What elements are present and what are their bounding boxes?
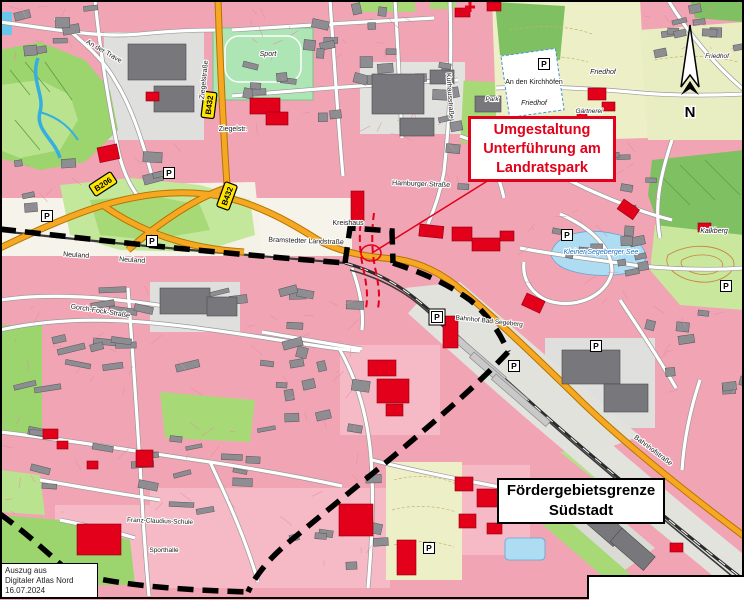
building — [53, 38, 67, 43]
public-building — [487, 523, 502, 534]
building — [329, 110, 341, 119]
building — [377, 63, 393, 73]
public-building — [339, 504, 373, 536]
building — [276, 382, 287, 388]
place-label: Sporthalle — [149, 547, 179, 554]
parking-label: P — [593, 341, 599, 351]
parking-icon: P — [509, 361, 520, 372]
building — [316, 48, 324, 58]
public-building — [588, 88, 606, 100]
parking-label: P — [564, 230, 570, 240]
large-building — [207, 297, 237, 316]
building — [386, 49, 396, 55]
callout-line: Südstadt — [499, 501, 663, 521]
large-building — [400, 118, 434, 136]
place-label: Kleiner Segeberger See — [564, 249, 639, 256]
building — [285, 413, 299, 422]
building — [24, 202, 37, 212]
public-building — [419, 224, 444, 238]
callout-line: Umgestaltung — [471, 121, 613, 140]
place-label: Kreishaus — [332, 220, 364, 227]
street-label: Ziegelstr. — [219, 126, 247, 133]
parking-label: P — [511, 361, 517, 371]
callout-foerdergebietsgrenze: Fördergebietsgrenze Südstadt — [497, 478, 665, 524]
building — [698, 310, 709, 317]
building — [55, 17, 69, 28]
building — [450, 121, 463, 132]
building — [315, 533, 327, 540]
public-building — [455, 477, 473, 491]
public-building — [386, 404, 403, 416]
building — [702, 29, 717, 37]
public-building — [397, 540, 416, 575]
parking-label: P — [541, 59, 547, 69]
public-building — [487, 2, 501, 11]
building — [42, 483, 57, 489]
building — [61, 159, 76, 169]
parking-icon: P — [429, 309, 445, 325]
callout-line: Unterführung am — [471, 140, 613, 159]
building — [351, 379, 370, 392]
building — [99, 287, 126, 293]
building — [617, 259, 626, 266]
public-building — [368, 360, 396, 376]
parking-icon: P — [591, 341, 602, 352]
map-attribution: Auszug aus Digitaler Atlas Nord 16.07.20… — [1, 563, 98, 598]
public-building — [250, 98, 280, 114]
parking-label: P — [434, 312, 440, 322]
building — [170, 435, 183, 442]
building — [346, 562, 357, 570]
building — [143, 152, 163, 163]
building — [169, 502, 194, 508]
building — [284, 389, 294, 401]
parking-icon: P — [42, 211, 53, 222]
parking-label: P — [149, 236, 155, 246]
callout-line: Fördergebietsgrenze — [499, 481, 663, 501]
north-label: N — [685, 104, 696, 121]
large-building — [160, 288, 210, 314]
public-building — [43, 429, 58, 439]
building — [221, 454, 242, 461]
building — [24, 45, 38, 56]
large-building — [372, 74, 424, 114]
place-label: Sport — [260, 51, 278, 58]
public-building — [602, 102, 615, 111]
attribution-line: 16.07.2024 — [5, 586, 94, 596]
large-building — [604, 384, 648, 412]
building — [252, 88, 266, 95]
street-label: An den Kirchhöfen — [505, 79, 563, 86]
building — [645, 319, 656, 330]
parking-label: P — [723, 281, 729, 291]
parking-label: P — [166, 168, 172, 178]
place-label: Friedhof — [521, 100, 548, 107]
parking-label: P — [426, 543, 432, 553]
parking-icon: P — [539, 59, 550, 70]
large-building — [154, 86, 194, 112]
building — [676, 322, 690, 333]
public-building — [77, 524, 121, 555]
place-label: Friedhof — [590, 69, 617, 76]
building — [368, 23, 376, 30]
public-building — [500, 231, 514, 241]
building — [373, 537, 388, 546]
building — [646, 178, 657, 183]
place-label: Gärtnerei — [575, 108, 603, 115]
building — [233, 478, 253, 487]
large-building — [562, 350, 620, 384]
public-building — [670, 543, 683, 552]
building — [360, 57, 372, 68]
attribution-line: Auszug aus — [5, 566, 94, 576]
building — [378, 7, 387, 17]
parking-icon: P — [562, 230, 573, 241]
building — [287, 322, 303, 329]
building — [665, 367, 675, 377]
public-building — [472, 238, 500, 251]
public-building — [266, 112, 288, 125]
parking-icon: P — [424, 543, 435, 554]
public-building — [377, 379, 409, 403]
public-building — [87, 461, 98, 469]
building — [638, 261, 649, 271]
place-label: Kalkberg — [700, 228, 728, 235]
public-building — [459, 514, 476, 528]
parking-icon: P — [147, 236, 158, 247]
map-document: B206B432B432 PPPPPPPPPP An der TraveZieg… — [0, 0, 744, 600]
building — [14, 160, 22, 167]
building — [276, 72, 287, 82]
building — [624, 226, 634, 237]
public-building — [146, 92, 159, 101]
public-building — [452, 227, 472, 241]
parking-icon: P — [721, 281, 732, 292]
parking-icon: P — [164, 168, 175, 179]
building — [246, 456, 260, 464]
large-building — [128, 44, 186, 80]
attribution-line: Digitaler Atlas Nord — [5, 576, 94, 586]
callout-line: Landratspark — [471, 159, 613, 178]
building — [621, 236, 633, 246]
building — [346, 301, 363, 310]
building — [250, 83, 261, 90]
callout-umgestaltung: Umgestaltung Unterführung am Landratspar… — [468, 116, 616, 182]
place-label: Friedhof — [705, 53, 730, 60]
place-label: Park — [485, 96, 499, 103]
parking-label: P — [44, 211, 50, 221]
public-building — [136, 450, 153, 467]
public-building — [57, 441, 68, 449]
building — [303, 39, 315, 50]
building — [318, 113, 327, 122]
public-building — [455, 8, 470, 17]
